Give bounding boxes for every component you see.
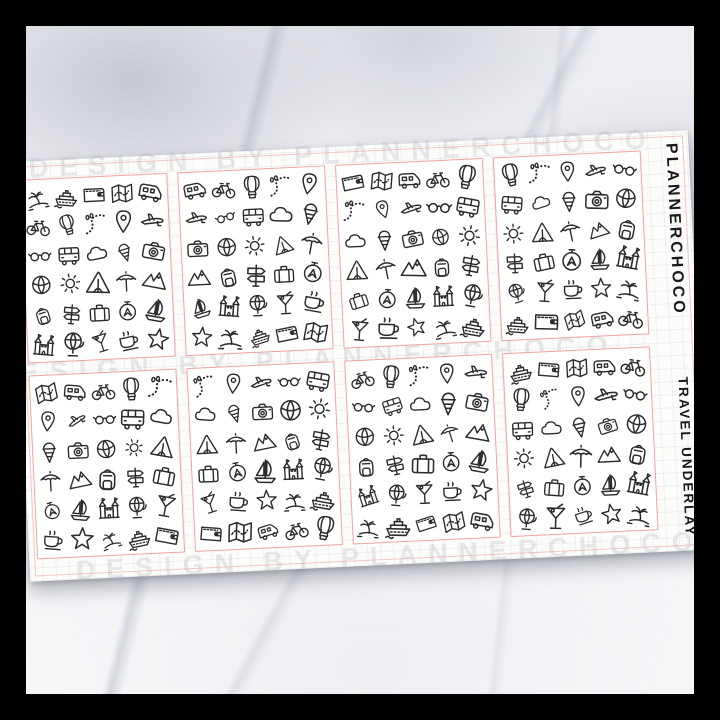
beach-ball-icon	[611, 183, 641, 214]
bicycle-icon	[88, 374, 118, 405]
sun-icon	[499, 218, 529, 249]
castle-icon	[279, 454, 309, 485]
cruise-ship-icon	[459, 309, 489, 340]
sailboat-icon	[400, 282, 430, 313]
footprints-icon	[81, 208, 111, 239]
sticker-square	[186, 361, 343, 552]
coffee-cup-icon	[114, 325, 144, 356]
coffee-cup-icon	[438, 476, 468, 507]
starfish-icon	[587, 273, 617, 304]
airplane-icon	[61, 405, 91, 436]
sun-icon	[378, 420, 408, 451]
wallet-icon	[196, 517, 226, 548]
tent-icon	[527, 217, 557, 248]
tent-icon	[192, 429, 222, 460]
cruise-ship-icon	[124, 521, 154, 552]
sticker-grid	[26, 151, 659, 560]
coffee-cup-icon	[569, 500, 599, 531]
sailboat-icon	[250, 456, 280, 487]
brand-vertical-label: PLANNERCHOCO	[661, 143, 687, 317]
ice-cream-icon	[34, 436, 64, 467]
bus-icon	[238, 201, 268, 232]
sticker-square	[335, 158, 492, 349]
hot-air-balloon-icon	[376, 361, 406, 392]
suitcase-icon	[194, 458, 224, 489]
palm-island-icon	[280, 484, 310, 515]
cloud-icon	[405, 389, 435, 420]
map-icon	[560, 304, 590, 335]
sunglasses-icon	[90, 404, 120, 435]
cocktail-icon	[345, 314, 375, 345]
map-icon	[108, 177, 138, 208]
cloud-icon	[526, 187, 556, 218]
signpost-icon	[56, 298, 86, 329]
location-pin-icon	[368, 195, 398, 226]
hot-air-balloon-icon	[496, 159, 526, 190]
sunglasses-icon	[349, 392, 379, 423]
footprints-icon	[145, 372, 175, 403]
compass-icon	[222, 457, 252, 488]
sun-icon	[240, 230, 270, 261]
wallet-icon	[79, 179, 109, 210]
bus-icon	[497, 189, 527, 220]
sunglasses-icon	[425, 192, 455, 223]
suitcase-icon	[408, 448, 438, 479]
bicycle-icon	[619, 349, 649, 380]
sun-icon	[454, 220, 484, 251]
starfish-icon	[143, 324, 173, 355]
bus-icon	[377, 390, 407, 421]
mountains-icon	[184, 262, 214, 293]
beach-ball-icon	[27, 270, 57, 301]
coffee-cup-icon	[299, 287, 329, 318]
sailboat-icon	[596, 469, 626, 500]
location-pin-icon	[553, 156, 583, 187]
signpost-icon	[511, 473, 541, 504]
camera-icon	[593, 410, 623, 441]
mountains-icon	[399, 252, 429, 283]
hot-air-balloon-icon	[452, 161, 482, 192]
ice-cream-icon	[295, 198, 325, 229]
mountains-icon	[464, 416, 494, 447]
starfish-icon	[466, 475, 496, 506]
ice-cream-icon	[219, 398, 249, 429]
bus-icon	[54, 239, 84, 270]
sailboat-icon	[585, 244, 615, 275]
cruise-ship-icon	[383, 508, 413, 539]
airplane-icon	[396, 193, 426, 224]
sunglasses-icon	[609, 154, 639, 185]
suitcase-icon	[149, 460, 179, 491]
hot-air-balloon-icon	[52, 210, 82, 241]
beach-umbrella-icon	[371, 254, 401, 285]
beach-umbrella-icon	[435, 417, 465, 448]
map-icon	[366, 165, 396, 196]
beach-ball-icon	[426, 221, 456, 252]
compass-icon	[298, 257, 328, 288]
wallet-icon	[411, 507, 441, 538]
product-vertical-label: TRAVEL UNDERLAY	[675, 376, 694, 537]
coffee-cup-icon	[223, 486, 253, 517]
cruise-ship-icon	[309, 482, 339, 513]
location-pin-icon	[294, 169, 324, 200]
cocktail-icon	[151, 490, 181, 521]
wallet-icon	[272, 317, 302, 348]
compass-icon	[437, 447, 467, 478]
beach-umbrella-icon	[297, 228, 327, 259]
cloud-icon	[536, 412, 566, 443]
mountains-icon	[64, 464, 94, 495]
bus-icon	[508, 414, 538, 445]
camera-icon	[248, 397, 278, 428]
cloud-icon	[82, 238, 112, 269]
camera-icon	[183, 233, 213, 264]
suitcase-icon	[344, 284, 374, 315]
signpost-icon	[121, 462, 151, 493]
footprints-icon	[524, 158, 554, 189]
backpack-icon	[427, 251, 457, 282]
backpack-icon	[352, 451, 382, 482]
sticker-sheet: DESIGN BY PLANNERCHOCO DESIGN BY PLANNER…	[26, 130, 694, 581]
backpack-icon	[93, 463, 123, 494]
bicycle-icon	[347, 362, 377, 393]
backpack-icon	[623, 438, 653, 469]
sunglasses-icon	[275, 366, 305, 397]
globe-icon	[58, 328, 88, 359]
wallet-icon	[531, 305, 561, 336]
cocktail-icon	[86, 326, 116, 357]
compass-icon	[113, 295, 143, 326]
starfish-icon	[402, 311, 432, 342]
palm-island-icon	[216, 320, 246, 351]
cocktail-icon	[195, 488, 225, 519]
signpost-icon	[380, 449, 410, 480]
hot-air-balloon-icon	[237, 171, 267, 202]
camera-icon	[398, 223, 428, 254]
mountains-icon	[249, 426, 279, 457]
location-pin-icon	[33, 407, 63, 438]
suitcase-icon	[270, 258, 300, 289]
map-icon	[32, 377, 62, 408]
camera-icon	[139, 235, 169, 266]
cloud-icon	[191, 399, 221, 430]
tent-icon	[407, 419, 437, 450]
footprints-icon	[265, 170, 295, 201]
mountains-icon	[594, 439, 624, 470]
footprints-icon	[190, 370, 220, 401]
sticker-square	[493, 151, 650, 342]
airplane-icon	[246, 367, 276, 398]
globe-icon	[122, 491, 152, 522]
airplane-icon	[592, 380, 622, 411]
castle-icon	[214, 291, 244, 322]
sticker-square	[344, 354, 501, 545]
location-pin-icon	[218, 368, 248, 399]
compass-icon	[372, 283, 402, 314]
wallet-icon	[152, 519, 182, 550]
castle-icon	[29, 329, 59, 360]
cocktail-icon	[271, 288, 301, 319]
starfish-icon	[67, 523, 97, 554]
camera-icon	[582, 184, 612, 215]
backpack-icon	[612, 213, 642, 244]
camper-van-icon	[468, 504, 498, 535]
beach-ball-icon	[621, 408, 651, 439]
backpack-icon	[213, 261, 243, 292]
palm-island-icon	[95, 522, 125, 553]
camera-icon	[462, 386, 492, 417]
ice-cream-icon	[565, 411, 595, 442]
globe-icon	[243, 289, 273, 320]
coffee-cup-icon	[373, 313, 403, 344]
bus-icon	[303, 364, 333, 395]
tent-icon	[268, 229, 298, 260]
cocktail-icon	[540, 501, 570, 532]
beach-ball-icon	[350, 421, 380, 452]
beach-umbrella-icon	[221, 427, 251, 458]
cocktail-icon	[410, 478, 440, 509]
bicycle-icon	[423, 162, 453, 193]
map-icon	[225, 516, 255, 547]
cruise-ship-icon	[244, 319, 274, 350]
cruise-ship-icon	[51, 180, 81, 211]
hot-air-balloon-icon	[117, 373, 147, 404]
castle-icon	[624, 467, 654, 498]
ice-cream-icon	[110, 236, 140, 267]
palm-island-icon	[615, 272, 645, 303]
sun-icon	[509, 443, 539, 474]
globe-icon	[512, 502, 542, 533]
hot-air-balloon-icon	[310, 512, 340, 543]
wallet-icon	[534, 353, 564, 384]
sticker-square	[29, 369, 186, 560]
sunglasses-icon	[210, 202, 240, 233]
mountains-icon	[584, 214, 614, 245]
tent-icon	[83, 267, 113, 298]
cruise-ship-icon	[505, 355, 535, 386]
sun-icon	[55, 269, 85, 300]
starfish-icon	[187, 321, 217, 352]
bus-icon	[453, 191, 483, 222]
globe-icon	[457, 279, 487, 310]
beach-ball-icon	[91, 433, 121, 464]
map-icon	[439, 506, 469, 537]
tent-icon	[538, 442, 568, 473]
tent-icon	[148, 431, 178, 462]
signpost-icon	[500, 248, 530, 279]
suitcase-icon	[539, 471, 569, 502]
sunglasses-icon	[26, 240, 55, 271]
bicycle-icon	[26, 211, 54, 242]
bicycle-icon	[616, 301, 646, 332]
location-pin-icon	[109, 207, 139, 238]
sun-icon	[120, 432, 150, 463]
globe-icon	[307, 453, 337, 484]
sticker-square	[177, 165, 334, 356]
coffee-cup-icon	[39, 525, 69, 556]
sun-icon	[304, 394, 334, 425]
palm-island-icon	[26, 181, 52, 212]
sticker-square	[26, 173, 176, 364]
bus-icon	[118, 403, 148, 434]
suitcase-icon	[85, 297, 115, 328]
palm-island-icon	[354, 510, 384, 541]
palm-island-icon	[430, 310, 460, 341]
footprints-icon	[535, 383, 565, 414]
wallet-icon	[338, 166, 368, 197]
hot-air-balloon-icon	[507, 384, 537, 415]
map-icon	[301, 316, 331, 347]
camper-van-icon	[395, 164, 425, 195]
castle-icon	[353, 480, 383, 511]
bicycle-icon	[282, 513, 312, 544]
camera-icon	[63, 435, 93, 466]
sailboat-icon	[66, 494, 96, 525]
airplane-icon	[461, 357, 491, 388]
signpost-icon	[306, 423, 336, 454]
compass-icon	[37, 495, 67, 526]
beach-umbrella-icon	[566, 441, 596, 472]
marble-background: DESIGN BY PLANNERCHOCO DESIGN BY PLANNER…	[26, 26, 694, 694]
location-pin-icon	[432, 358, 462, 389]
compass-icon	[557, 245, 587, 276]
suitcase-icon	[528, 246, 558, 277]
signpost-icon	[456, 250, 486, 281]
sticker-square	[502, 346, 659, 537]
sailboat-icon	[141, 294, 171, 325]
cocktail-icon	[530, 276, 560, 307]
beach-umbrella-icon	[555, 215, 585, 246]
camper-van-icon	[590, 351, 620, 382]
sailboat-icon	[465, 445, 495, 476]
coffee-cup-icon	[558, 274, 588, 305]
airplane-icon	[581, 155, 611, 186]
beach-ball-icon	[276, 395, 306, 426]
castle-icon	[94, 492, 124, 523]
globe-icon	[381, 479, 411, 510]
signpost-icon	[241, 260, 271, 291]
castle-icon	[614, 242, 644, 273]
camper-van-icon	[136, 176, 166, 207]
palm-island-icon	[626, 497, 656, 528]
castle-icon	[429, 280, 459, 311]
ice-cream-icon	[369, 224, 399, 255]
map-icon	[562, 352, 592, 383]
ice-cream-icon	[434, 388, 464, 419]
globe-icon	[502, 277, 532, 308]
beach-umbrella-icon	[112, 266, 142, 297]
bicycle-icon	[209, 173, 239, 204]
mountains-icon	[140, 265, 170, 296]
backpack-icon	[277, 425, 307, 456]
sunglasses-icon	[620, 379, 650, 410]
beach-umbrella-icon	[36, 466, 66, 497]
cloud-icon	[147, 401, 177, 432]
backpack-icon	[28, 299, 58, 330]
footprints-icon	[404, 360, 434, 391]
location-pin-icon	[563, 382, 593, 413]
footprints-icon	[340, 196, 370, 227]
airplane-icon	[137, 205, 167, 236]
airplane-icon	[182, 203, 212, 234]
camper-van-icon	[60, 376, 90, 407]
cloud-icon	[267, 199, 297, 230]
sailboat-icon	[186, 292, 216, 323]
tent-icon	[342, 255, 372, 286]
camper-van-icon	[180, 174, 210, 205]
compass-icon	[567, 470, 597, 501]
cloud-icon	[341, 225, 371, 256]
beach-ball-icon	[211, 232, 241, 263]
camper-van-icon	[588, 303, 618, 334]
ice-cream-icon	[554, 186, 584, 217]
starfish-icon	[597, 498, 627, 529]
cruise-ship-icon	[503, 307, 533, 338]
camper-van-icon	[253, 515, 283, 546]
starfish-icon	[252, 485, 282, 516]
